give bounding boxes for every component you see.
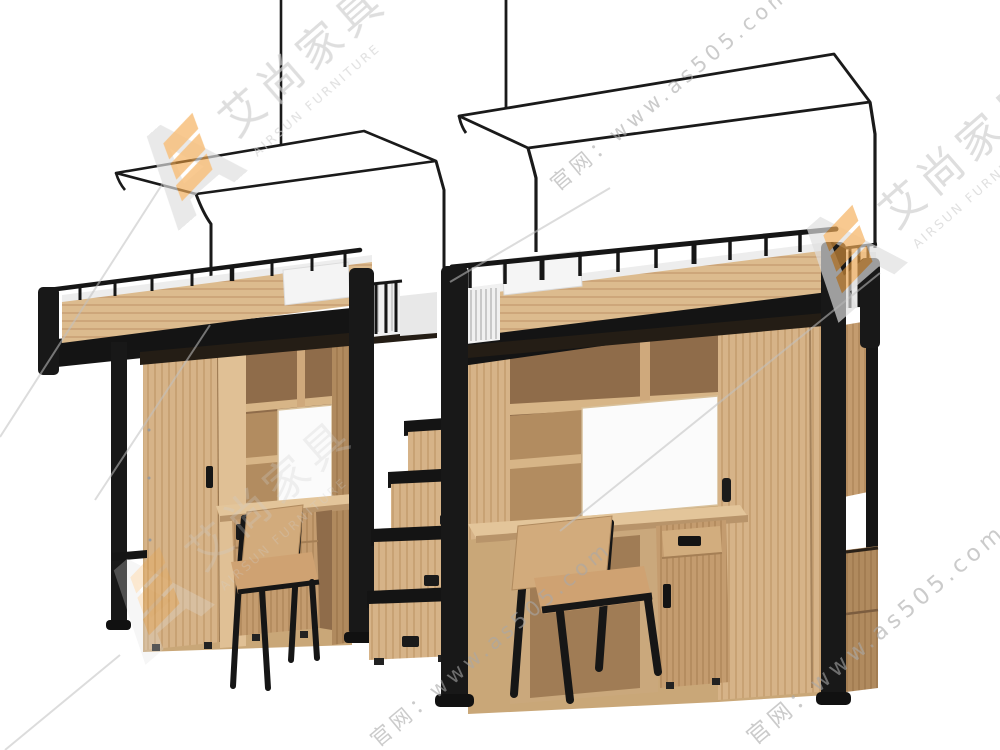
right-cabinet-door-handle <box>663 584 671 608</box>
brand-cn-text: 艾尚家具 <box>210 0 397 147</box>
right-wardrobe-handle <box>722 478 731 502</box>
brand-watermark-top-left: 艾尚家具 AIRSUN FURNITURE <box>118 0 411 231</box>
left-bed-end-rail <box>372 281 402 334</box>
right-drawer-handle <box>678 536 701 546</box>
brand-cn-text: 艾尚家具 <box>870 66 1000 238</box>
site-watermark-1: 官网：www.as505.com <box>546 0 796 196</box>
left-pillow <box>283 262 350 305</box>
right-left-leg <box>441 266 468 700</box>
left-wardrobe-handle <box>206 466 213 488</box>
product-image: 艾尚家具 AIRSUN FURNITURE 艾尚家具 AIRSUN FURNIT… <box>0 0 1000 750</box>
furniture-render: 艾尚家具 AIRSUN FURNITURE 艾尚家具 AIRSUN FURNIT… <box>0 0 1000 750</box>
right-window-opening <box>582 396 718 517</box>
right-mosquito-net-frame <box>459 0 875 252</box>
